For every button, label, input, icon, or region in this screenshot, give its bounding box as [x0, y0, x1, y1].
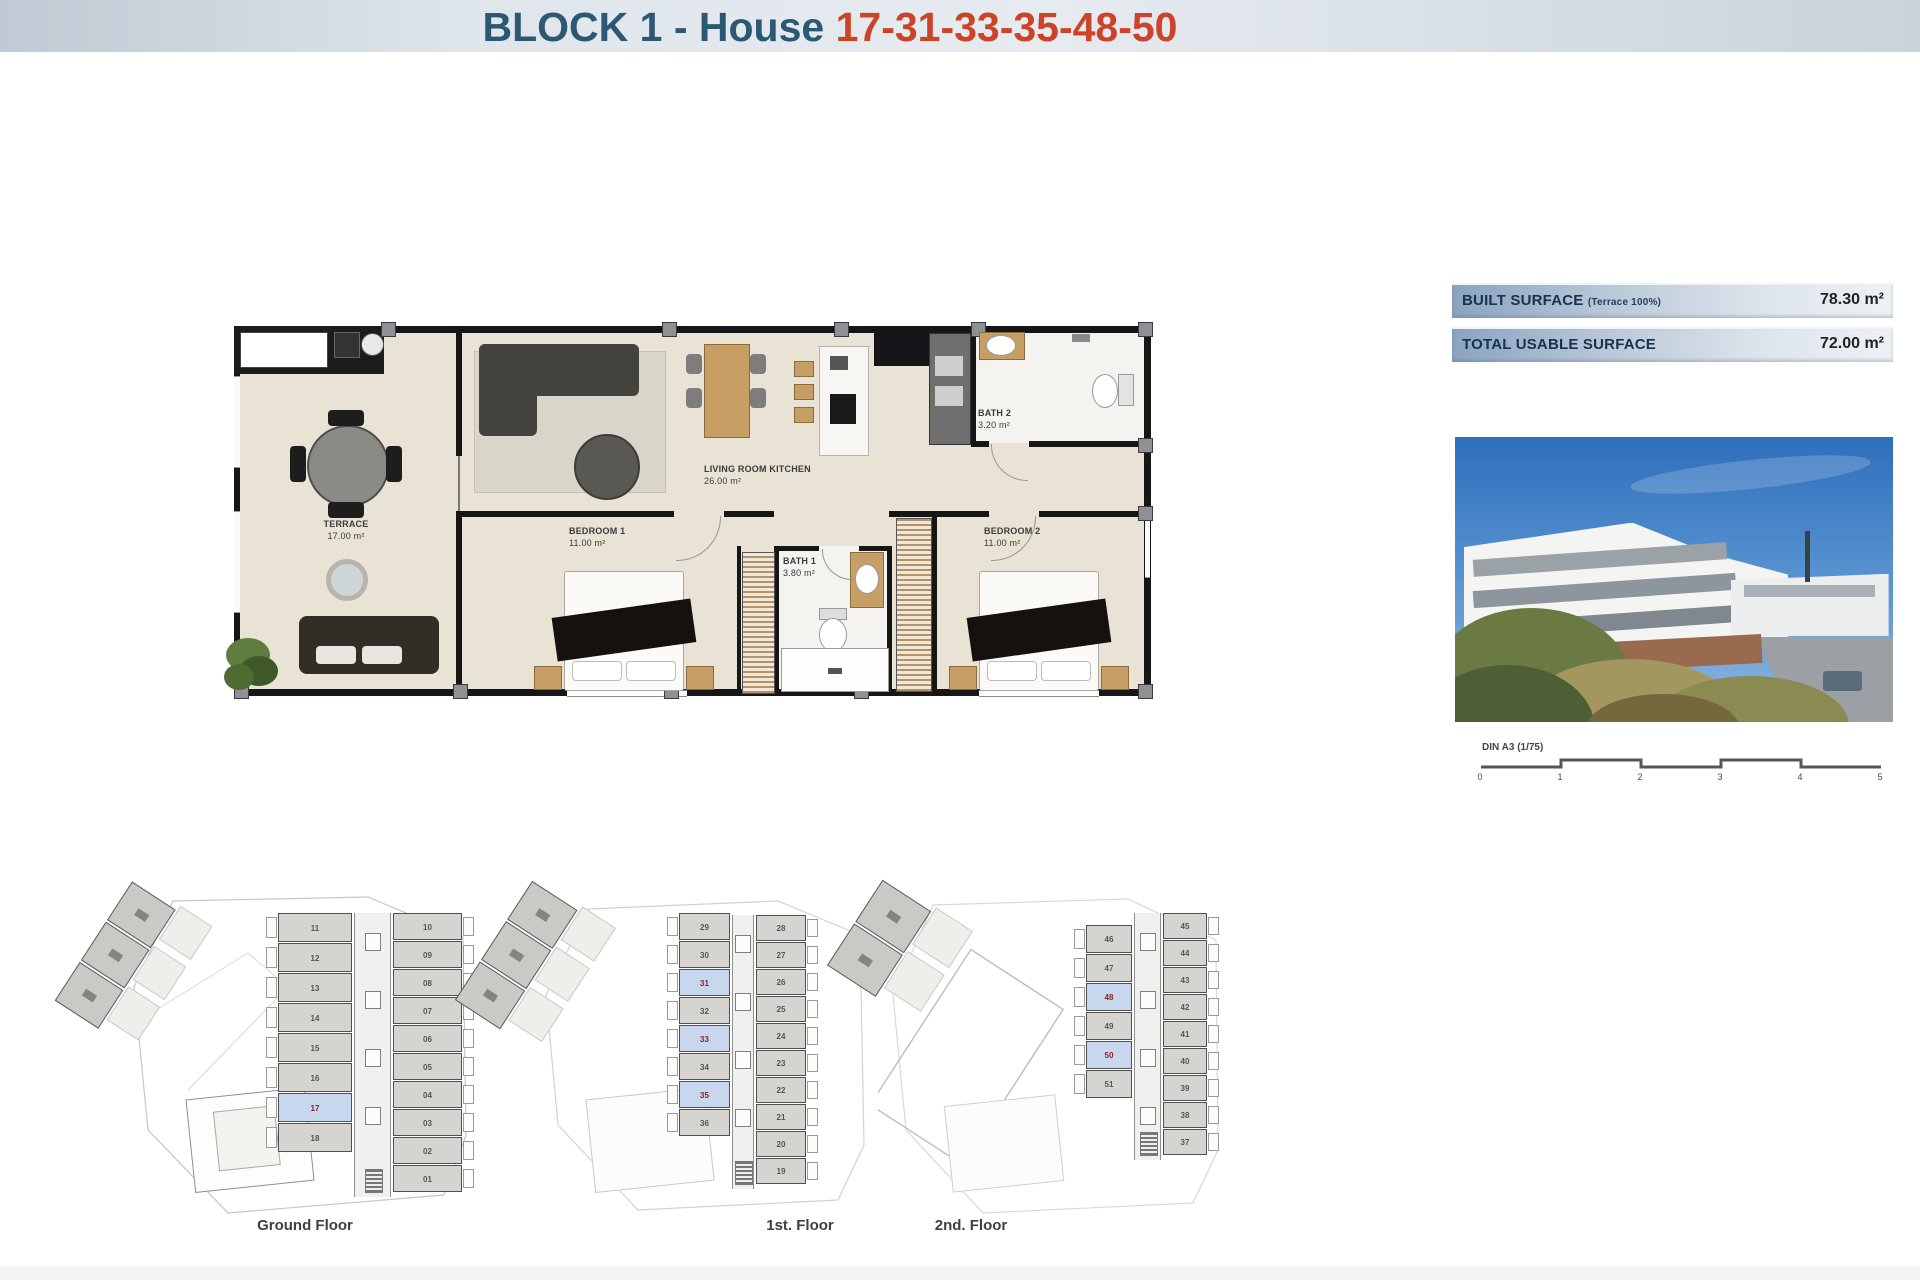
- balcony-tab: [1074, 1045, 1085, 1065]
- unit-grid: 293031323334353628272625242322212019: [528, 895, 873, 1230]
- unit-cell: 18: [278, 1123, 352, 1152]
- plant: [224, 664, 254, 690]
- bath2-wall-left: [971, 328, 976, 447]
- wall-bed2-left: [932, 511, 937, 696]
- terrace-chair: [386, 446, 402, 482]
- pillar: [1138, 506, 1153, 521]
- balcony-tab: [463, 1169, 474, 1188]
- balcony-tab: [667, 945, 678, 964]
- scale-tick: 3: [1710, 772, 1730, 782]
- sofa-cushion: [362, 646, 402, 664]
- usable-surface-value: 72.00 m²: [1820, 335, 1884, 353]
- unit-cell: 09: [393, 941, 462, 968]
- nightstand: [534, 666, 562, 690]
- terrace-chair: [290, 446, 306, 482]
- balcony-tab: [1074, 987, 1085, 1007]
- terrace-divider-top: [456, 326, 462, 456]
- balcony-tab: [463, 1029, 474, 1048]
- kitchen-sink-counter: [240, 332, 328, 368]
- balcony-tab: [667, 917, 678, 936]
- scale-tick: 2: [1630, 772, 1650, 782]
- unit-cell: 19: [756, 1158, 806, 1184]
- unit-cell: 40: [1163, 1048, 1207, 1074]
- balcony-tab: [1208, 1106, 1219, 1124]
- mini-plan-ground: 111213141516171810090807060504030201 Gro…: [128, 895, 473, 1230]
- unit-cell: 28: [756, 915, 806, 941]
- bedroom2-label: BEDROOM 2 11.00 m²: [984, 526, 1084, 549]
- bath2-faucet: [1072, 334, 1090, 342]
- balcony-tab: [1074, 929, 1085, 949]
- elevator: [365, 933, 381, 951]
- balcony-tab: [807, 946, 818, 964]
- unit-cell: 43: [1163, 967, 1207, 993]
- usable-surface-label: TOTAL USABLE SURFACE: [1462, 336, 1656, 353]
- terrace-divider-bottom: [456, 511, 462, 696]
- floor-caption: 2nd. Floor: [901, 1217, 1041, 1234]
- dining-chair: [686, 354, 702, 374]
- building-photo: [1455, 437, 1893, 722]
- balcony-tab: [266, 1067, 277, 1088]
- wall-seg-3: [889, 511, 989, 517]
- unit-cell: 29: [679, 913, 730, 940]
- elevator: [1140, 1107, 1156, 1125]
- unit-cell: 45: [1163, 913, 1207, 939]
- wall-bed1-wardrobe: [737, 546, 741, 696]
- usable-surface-bar: TOTAL USABLE SURFACE 72.00 m²: [1452, 327, 1893, 362]
- balcony-tab: [807, 1162, 818, 1180]
- built-surface-bar: BUILT SURFACE (Terrace 100%) 78.30 m²: [1452, 283, 1893, 318]
- unit-cell: 23: [756, 1050, 806, 1076]
- unit-cell: 42: [1163, 994, 1207, 1020]
- unit-cell: 32: [679, 997, 730, 1024]
- pillar: [1138, 438, 1153, 453]
- balcony-tab: [1208, 1133, 1219, 1151]
- built-surface-note: (Terrace 100%): [1588, 297, 1661, 308]
- wall-seg-2: [724, 511, 774, 517]
- pillar: [381, 322, 396, 337]
- sofa-cushion: [316, 646, 356, 664]
- balcony-tab: [667, 1029, 678, 1048]
- dining-table: [704, 344, 750, 438]
- unit-cell: 33: [679, 1025, 730, 1052]
- unit-cell: 04: [393, 1081, 462, 1108]
- closet-shelf: [935, 356, 963, 376]
- pillar: [453, 684, 468, 699]
- bath1-toilet: [819, 618, 847, 652]
- pillar: [1138, 684, 1153, 699]
- balcony-tab: [266, 917, 277, 938]
- balcony-tab: [807, 1108, 818, 1126]
- balcony-tab: [266, 1037, 277, 1058]
- unit-cell: 21: [756, 1104, 806, 1130]
- unit-cell: 07: [393, 997, 462, 1024]
- balcony-tab: [667, 1057, 678, 1076]
- unit-cell: 25: [756, 996, 806, 1022]
- stairs: [735, 1161, 753, 1185]
- dining-chair: [750, 388, 766, 408]
- unit-cell: 15: [278, 1033, 352, 1062]
- pillar: [1138, 322, 1153, 337]
- unit-cell: 31: [679, 969, 730, 996]
- balcony-tab: [807, 1000, 818, 1018]
- unit-cell: 34: [679, 1053, 730, 1080]
- balcony-tab: [667, 1085, 678, 1104]
- unit-cell: 27: [756, 942, 806, 968]
- unit-cell: 17: [278, 1093, 352, 1122]
- page-title: BLOCK 1 - House 17-31-33-35-48-50: [0, 2, 1660, 52]
- unit-cell: 14: [278, 1003, 352, 1032]
- elevator: [365, 991, 381, 1009]
- brochure-page: { "header": { "title_prefix": "BLOCK 1 -…: [0, 0, 1920, 1280]
- unit-cell: 01: [393, 1165, 462, 1192]
- hob-icon: [334, 332, 360, 358]
- unit-cell: 26: [756, 969, 806, 995]
- bedroom1-label: BEDROOM 1 11.00 m²: [569, 526, 669, 549]
- balcony-tab: [1074, 958, 1085, 978]
- bed-2-pillow: [987, 661, 1037, 681]
- elevator: [365, 1107, 381, 1125]
- balcony-tab: [266, 947, 277, 968]
- elevator: [1140, 991, 1156, 1009]
- unit-cell: 08: [393, 969, 462, 996]
- balcony-tab: [1074, 1016, 1085, 1036]
- unit-cell: 49: [1086, 1012, 1132, 1040]
- stairs: [1140, 1132, 1158, 1156]
- bath1-sink: [855, 564, 879, 594]
- bath2-wall-bottom-b: [1029, 441, 1151, 447]
- balcony-tab: [266, 1007, 277, 1028]
- unit-cell: 39: [1163, 1075, 1207, 1101]
- balcony-tab: [667, 1113, 678, 1132]
- balcony-tab: [1208, 971, 1219, 989]
- streetlight: [1805, 531, 1809, 582]
- unit-cell: 10: [393, 913, 462, 940]
- balcony-tab: [1208, 1052, 1219, 1070]
- unit-cell: 30: [679, 941, 730, 968]
- title-prefix: BLOCK 1 - House: [483, 4, 836, 50]
- scale-ticks: 012345: [1480, 772, 1882, 784]
- wardrobe-bed1: [742, 552, 775, 694]
- bath2-cistern: [1118, 374, 1134, 406]
- balcony-tab: [463, 1141, 474, 1160]
- bed-1-pillow: [626, 661, 676, 681]
- unit-cell: 20: [756, 1131, 806, 1157]
- coffee-table: [574, 434, 640, 500]
- island-sink: [830, 356, 848, 370]
- bath2-toilet: [1092, 374, 1118, 408]
- elevator: [1140, 933, 1156, 951]
- balcony-tab: [1208, 917, 1219, 935]
- building-right: [1731, 574, 1889, 637]
- scale-tick: 4: [1790, 772, 1810, 782]
- nightstand: [949, 666, 977, 690]
- balcony-tab: [1208, 944, 1219, 962]
- pillar: [662, 322, 677, 337]
- living-label: LIVING ROOM KITCHEN 26.00 m²: [704, 464, 844, 487]
- unit-cell: 35: [679, 1081, 730, 1108]
- balcony-tab: [807, 919, 818, 937]
- elevator: [735, 935, 751, 953]
- footer-strip: [0, 1266, 1920, 1280]
- unit-grid: 111213141516171810090807060504030201: [128, 895, 473, 1230]
- stairs: [365, 1169, 383, 1193]
- unit-cell: 05: [393, 1053, 462, 1080]
- bed-2-pillow: [1041, 661, 1091, 681]
- unit-cell: 22: [756, 1077, 806, 1103]
- scale-tick: 1: [1550, 772, 1570, 782]
- unit-cell: 02: [393, 1137, 462, 1164]
- built-surface-label: BUILT SURFACE (Terrace 100%): [1462, 292, 1661, 309]
- unit-cell: 24: [756, 1023, 806, 1049]
- unit-grid: 464748495051454443424140393837: [878, 895, 1223, 1230]
- unit-cell: 47: [1086, 954, 1132, 982]
- elevator: [735, 1051, 751, 1069]
- wall-living-bed1: [456, 511, 674, 517]
- bath2-sink: [986, 335, 1016, 356]
- unit-cell: 13: [278, 973, 352, 1002]
- elevator: [365, 1049, 381, 1067]
- bed-1-pillow: [572, 661, 622, 681]
- fridge-column: [874, 328, 929, 366]
- balcony-tab: [667, 973, 678, 992]
- car: [1823, 671, 1862, 691]
- nightstand: [1101, 666, 1129, 690]
- wall-seg-4: [1039, 511, 1151, 517]
- bath1-shower-fixture: [828, 668, 842, 674]
- right-window: [1145, 516, 1150, 578]
- bar-stool: [794, 361, 814, 377]
- balcony-tab: [807, 973, 818, 991]
- balcony-tab: [807, 1135, 818, 1153]
- unit-cell: 11: [278, 913, 352, 942]
- balcony-tab: [463, 1113, 474, 1132]
- balcony-tab: [1208, 1025, 1219, 1043]
- balcony-tab: [1208, 998, 1219, 1016]
- bath1-label: BATH 1 3.80 m²: [783, 556, 843, 579]
- bedroom2-window: [979, 690, 1099, 697]
- bath2-label: BATH 2 3.20 m²: [978, 408, 1048, 431]
- floor-caption: Ground Floor: [235, 1217, 375, 1234]
- title-house-numbers: 17-31-33-35-48-50: [836, 4, 1178, 50]
- island-hob: [830, 394, 856, 424]
- balcony-tab: [667, 1001, 678, 1020]
- terrace-sofa: [299, 616, 439, 674]
- elevator: [735, 1109, 751, 1127]
- header-band: BLOCK 1 - House 17-31-33-35-48-50: [0, 0, 1920, 52]
- balcony-tab: [807, 1027, 818, 1045]
- closet-shelf: [935, 386, 963, 406]
- terrace-window-2: [234, 511, 240, 613]
- scale-tick: 0: [1470, 772, 1490, 782]
- unit-cell: 37: [1163, 1129, 1207, 1155]
- unit-cell: 38: [1163, 1102, 1207, 1128]
- unit-cell: 50: [1086, 1041, 1132, 1069]
- unit-cell: 46: [1086, 925, 1132, 953]
- balcony-tab: [266, 1127, 277, 1148]
- balcony-tab: [807, 1081, 818, 1099]
- unit-cell: 16: [278, 1063, 352, 1092]
- pillar: [834, 322, 849, 337]
- balcony-tab: [1074, 1074, 1085, 1094]
- balcony-tab: [463, 1057, 474, 1076]
- elevator: [1140, 1049, 1156, 1067]
- unit-cell: 36: [679, 1109, 730, 1136]
- elevator: [735, 993, 751, 1011]
- balcony-tab: [463, 945, 474, 964]
- terrace-pouf: [326, 559, 368, 601]
- unit-cell: 03: [393, 1109, 462, 1136]
- unit-cell: 44: [1163, 940, 1207, 966]
- wardrobe-bed2: [896, 518, 932, 692]
- unit-cell: 48: [1086, 983, 1132, 1011]
- mini-plan-second: 464748495051454443424140393837 2nd. Floo…: [878, 895, 1223, 1230]
- bath1-wall-top-a: [774, 546, 819, 551]
- unit-cell: 12: [278, 943, 352, 972]
- balcony-tab: [463, 917, 474, 936]
- balcony-tab: [807, 1054, 818, 1072]
- apartment-floor-plan: TERRACE 17.00 m² LIVING ROOM KITCHEN 26.…: [234, 316, 1151, 704]
- terrace-chair: [328, 502, 364, 518]
- sofa-l-vertical: [479, 344, 537, 436]
- terrace-window: [234, 376, 240, 468]
- bar-stool: [794, 407, 814, 423]
- balcony-tab: [1208, 1079, 1219, 1097]
- balcony-tab: [463, 1085, 474, 1104]
- wall-top: [384, 326, 1151, 333]
- scale-tick: 5: [1870, 772, 1890, 782]
- mini-plan-first: 293031323334353628272625242322212019 1st…: [528, 895, 873, 1230]
- terrace-table: [307, 425, 389, 507]
- side-block: [54, 881, 174, 1029]
- unit-cell: 51: [1086, 1070, 1132, 1098]
- floor-caption: 1st. Floor: [730, 1217, 870, 1234]
- built-surface-value: 78.30 m²: [1820, 291, 1884, 309]
- nightstand: [686, 666, 714, 690]
- building-right-windows: [1744, 585, 1875, 596]
- bar-stool: [794, 384, 814, 400]
- terrace-chair: [328, 410, 364, 426]
- balcony-tab: [266, 977, 277, 998]
- balcony-tab: [266, 1097, 277, 1118]
- unit-cell: 41: [1163, 1021, 1207, 1047]
- scale-label: DIN A3 (1/75): [1482, 742, 1543, 753]
- terrace-label: TERRACE 17.00 m²: [296, 519, 396, 542]
- dining-chair: [750, 354, 766, 374]
- cloud: [1629, 447, 1872, 501]
- dining-chair: [686, 388, 702, 408]
- scale-bar: [1480, 756, 1882, 770]
- unit-cell: 06: [393, 1025, 462, 1052]
